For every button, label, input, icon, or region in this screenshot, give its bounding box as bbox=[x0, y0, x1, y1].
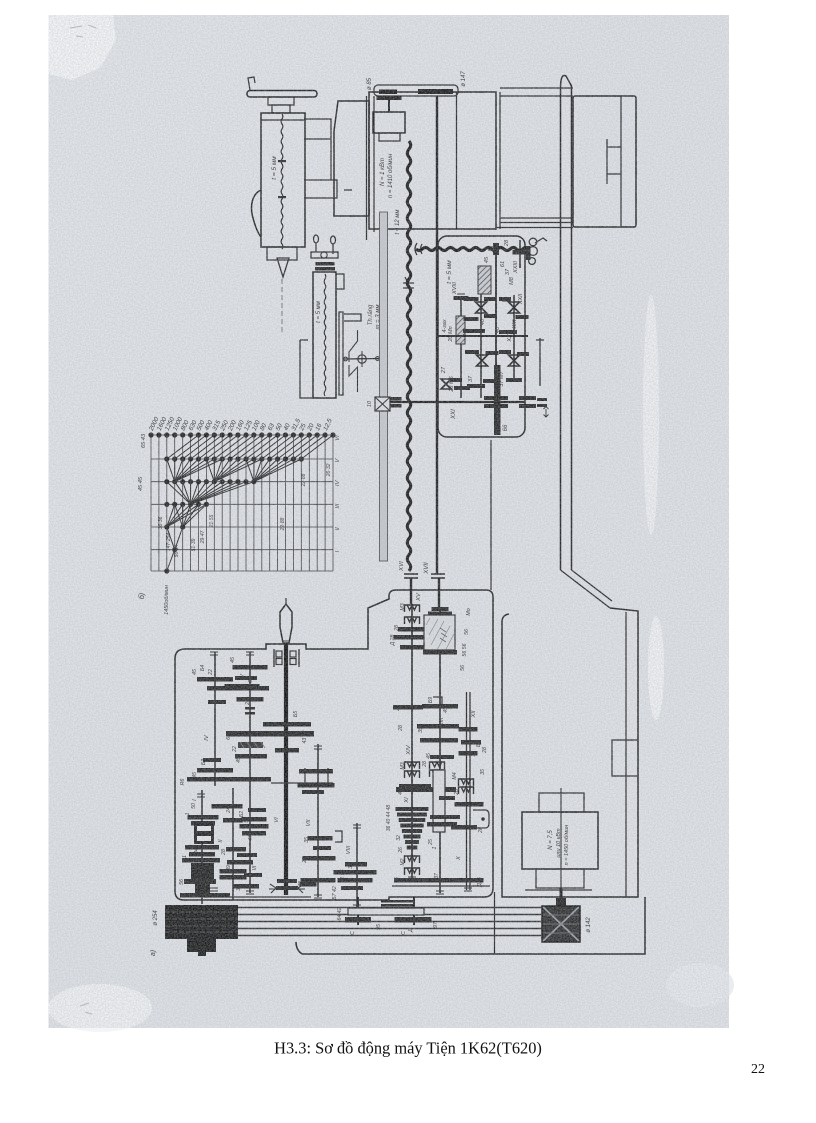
svg-text:H3.3: Sơ đồ động máy Tiện 1K62: H3.3: Sơ đồ động máy Tiện 1K62(T620) bbox=[274, 1039, 542, 1058]
svg-text:22: 22 bbox=[751, 1062, 765, 1077]
